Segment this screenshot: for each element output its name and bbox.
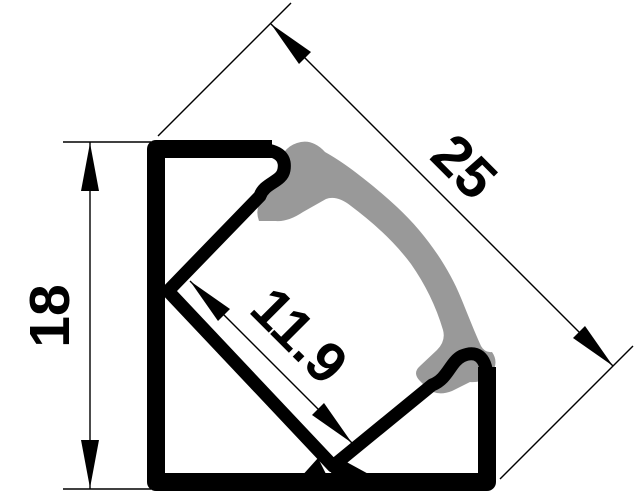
technical-drawing: 18 25 11.9 bbox=[0, 0, 637, 497]
drawing-canvas: 18 25 11.9 bbox=[0, 0, 637, 497]
drawing-background bbox=[0, 0, 637, 497]
dim-18-label: 18 bbox=[18, 284, 82, 347]
